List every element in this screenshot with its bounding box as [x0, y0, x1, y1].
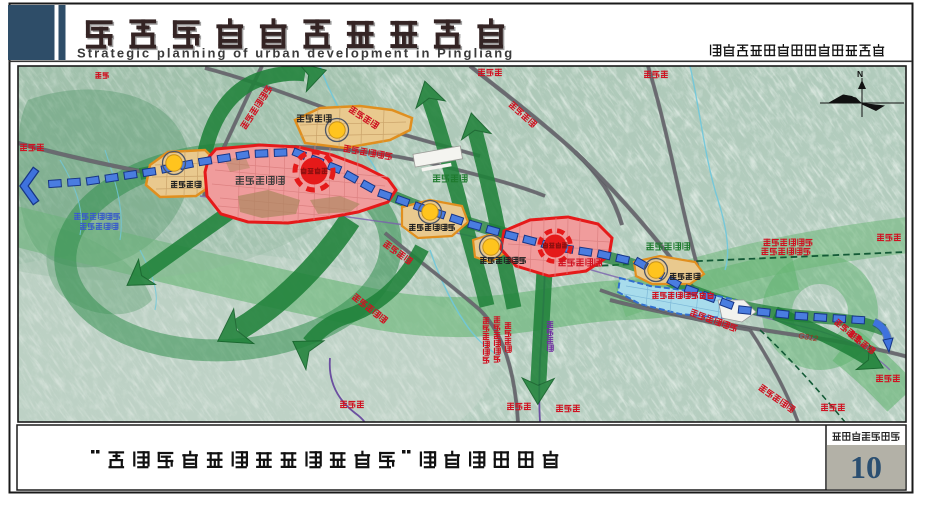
svg-text:10: 10: [850, 449, 882, 485]
svg-text:Strategic planning of urban de: Strategic planning of urban development …: [77, 46, 514, 61]
svg-text:N: N: [857, 69, 863, 79]
